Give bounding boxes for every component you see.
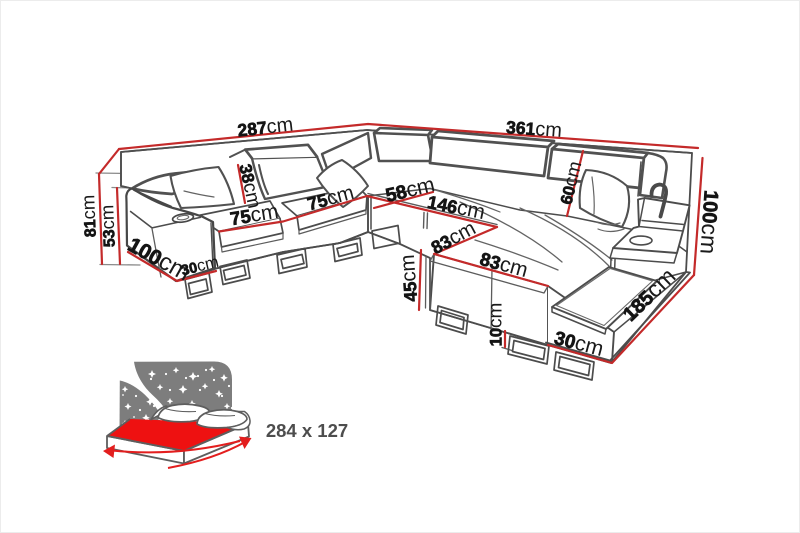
svg-text:284 x 127: 284 x 127 — [266, 420, 348, 441]
svg-text:45cm: 45cm — [396, 254, 422, 303]
svg-text:10cm: 10cm — [486, 303, 507, 347]
